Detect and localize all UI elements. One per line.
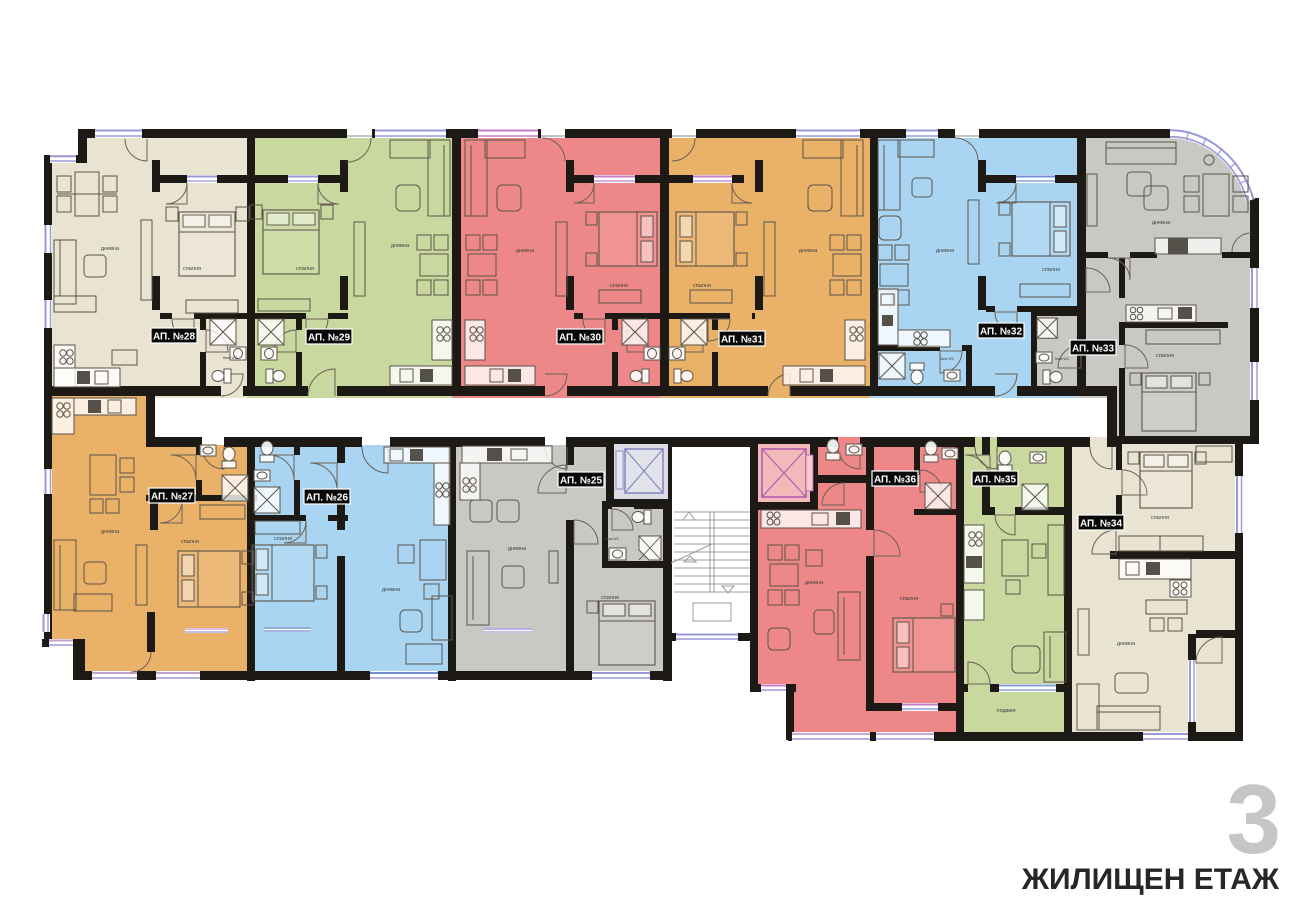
svg-text:АП. №29: АП. №29	[308, 333, 351, 344]
svg-text:спалня: спалня	[1156, 353, 1174, 359]
svg-text:спалня: спалня	[1151, 515, 1169, 521]
svg-text:АП. №34: АП. №34	[1080, 519, 1123, 530]
svg-text:спалня: спалня	[601, 595, 619, 601]
svg-text:баня WC: баня WC	[605, 537, 620, 541]
svg-text:баня WC: баня WC	[1055, 357, 1070, 361]
svg-text:спалня: спалня	[296, 266, 314, 272]
svg-text:АП. №30: АП. №30	[559, 333, 602, 344]
svg-text:спалня: спалня	[181, 539, 199, 545]
svg-text:дневна: дневна	[1152, 220, 1171, 226]
svg-text:дневна: дневна	[1117, 641, 1136, 647]
svg-text:спалня: спалня	[183, 266, 201, 272]
svg-text:дневна: дневна	[799, 248, 818, 254]
svg-text:спалня: спалня	[274, 536, 292, 542]
svg-text:спалня: спалня	[900, 596, 918, 602]
svg-text:баня WC: баня WC	[223, 356, 238, 360]
svg-text:лоджия: лоджия	[996, 708, 1015, 714]
svg-text:АП. №33: АП. №33	[1072, 344, 1115, 355]
svg-text:спалня: спалня	[693, 283, 711, 289]
svg-text:дневна: дневна	[936, 248, 955, 254]
svg-text:спалня: спалня	[610, 283, 628, 289]
svg-text:спалня: спалня	[1042, 267, 1060, 273]
svg-text:АП. №28: АП. №28	[153, 332, 196, 343]
svg-text:дневна: дневна	[101, 246, 120, 252]
svg-text:АП. №35: АП. №35	[974, 475, 1017, 486]
svg-text:дневна: дневна	[805, 580, 824, 586]
svg-text:АП. №31: АП. №31	[721, 335, 764, 346]
svg-text:дневна: дневна	[391, 243, 410, 249]
svg-text:баня WC: баня WC	[940, 357, 955, 361]
svg-text:дневна: дневна	[516, 248, 535, 254]
svg-text:АП. №27: АП. №27	[151, 492, 194, 503]
svg-text:АП. №32: АП. №32	[980, 327, 1023, 338]
svg-text:АП. №25: АП. №25	[560, 476, 603, 487]
svg-text:АП. №26: АП. №26	[306, 493, 349, 504]
svg-text:3: 3	[1226, 764, 1281, 874]
svg-text:ЖИЛИЩЕН ЕТАЖ: ЖИЛИЩЕН ЕТАЖ	[1021, 863, 1280, 896]
svg-text:АП. №36: АП. №36	[874, 475, 917, 486]
svg-text:дневна: дневна	[382, 587, 401, 593]
svg-text:дневна: дневна	[508, 546, 527, 552]
svg-text:дневна: дневна	[101, 529, 120, 535]
